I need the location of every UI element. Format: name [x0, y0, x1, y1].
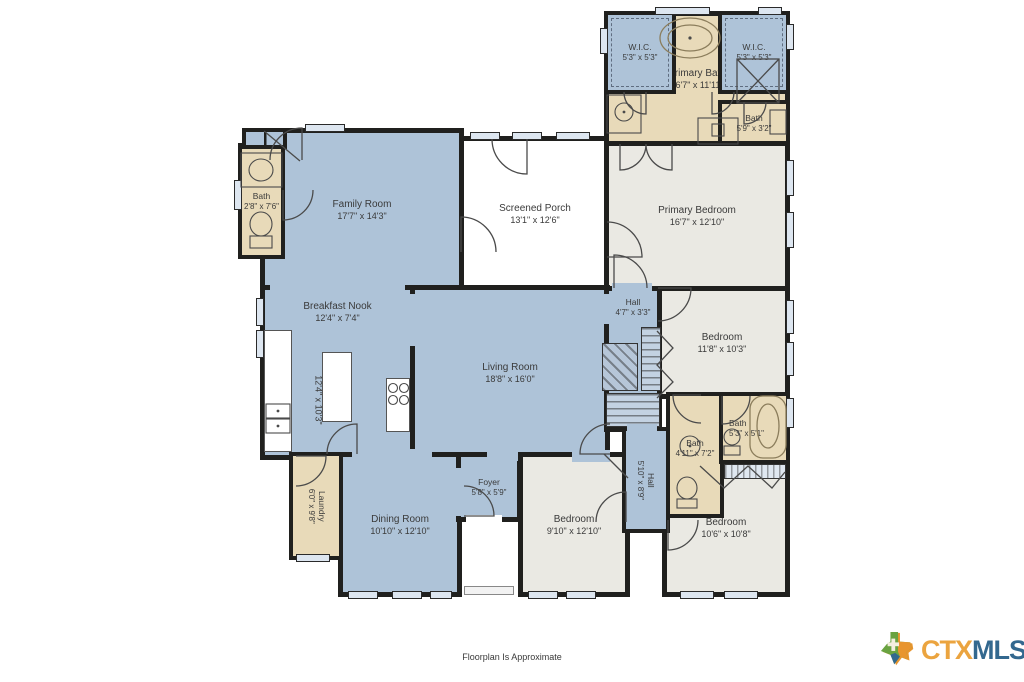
- opening-living-hallupper: [601, 294, 613, 324]
- window-marker: [786, 398, 794, 428]
- room-label: Breakfast Nook: [303, 300, 371, 313]
- room-dims: 18'8" x 16'0": [485, 374, 534, 385]
- room-label: Bedroom: [554, 513, 595, 526]
- kitchen-island: [322, 352, 352, 422]
- room-label: Hall: [626, 297, 641, 308]
- window-marker: [512, 132, 542, 140]
- texas-icon: [880, 630, 918, 670]
- window-marker: [680, 591, 714, 599]
- room-dims: 5'3" x 5'3": [737, 53, 772, 63]
- room-dims: 5'3" x 5'1": [729, 429, 764, 439]
- room-dims: 10'6" x 10'8": [701, 529, 750, 540]
- window-marker: [296, 554, 330, 562]
- room-dims: 16'7" x 11'11": [670, 80, 723, 91]
- room-laundry: Laundry 6'0" x 9'8": [289, 452, 343, 560]
- window-marker: [566, 591, 596, 599]
- logo-ctx-text: CTX: [921, 637, 972, 664]
- room-label: W.I.C.: [628, 42, 651, 53]
- room-living: Living Room 18'8" x 16'0": [410, 285, 610, 460]
- room-label: Primary Bedroom: [658, 204, 736, 217]
- window-marker: [724, 591, 758, 599]
- window-marker: [758, 7, 782, 15]
- opening-primary-hall: [612, 283, 652, 295]
- room-wic-right: W.I.C. 5'3" x 5'3": [718, 11, 790, 94]
- opening-living-foyer: [487, 449, 518, 461]
- room-dims: 9'10" x 12'10": [547, 526, 601, 537]
- room-label: Family Room: [333, 198, 392, 211]
- stove-icon: [386, 378, 410, 432]
- window-marker: [392, 591, 422, 599]
- logo-mls-text: MLS: [972, 637, 1024, 664]
- linen-closet: [641, 327, 661, 391]
- room-dims: 2'8" x 7'6": [244, 202, 279, 212]
- room-dims: 4'11" x 7'2": [676, 449, 715, 459]
- window-marker: [528, 591, 558, 599]
- opening-front-door: [466, 515, 502, 524]
- room-hall-lower: Hall 5'10" x 8'9": [622, 427, 670, 533]
- closet-top-left: [242, 128, 287, 149]
- ctxmls-logo: CTXMLS: [880, 630, 1024, 670]
- room-label: Bedroom: [702, 331, 743, 344]
- room-label: W.I.C.: [742, 42, 765, 53]
- room-dims: 13'1" x 12'6": [510, 215, 559, 226]
- window-marker: [430, 591, 452, 599]
- room-bath-3: Bath 4'11" x 7'2": [666, 392, 724, 518]
- window-marker: [234, 180, 242, 210]
- room-label: Dining Room: [371, 513, 429, 526]
- room-screened-porch: Screened Porch 13'1" x 12'6": [459, 136, 611, 291]
- floor-plan: Family Room 17'7" x 14'3" Screened Porch…: [0, 0, 1024, 682]
- room-label: Screened Porch: [499, 202, 571, 215]
- room-label: Bath: [253, 191, 271, 202]
- opening-family-breakfast: [270, 282, 405, 294]
- room-bedroom-2: Bedroom 11'8" x 10'3": [654, 286, 790, 399]
- opening-living-hall: [572, 450, 610, 462]
- room-dims: 11'8" x 10'3": [698, 344, 747, 355]
- opening-dining-foyer: [453, 468, 466, 516]
- room-dims: 5'3" x 5'3": [623, 53, 658, 63]
- room-primary-bedroom: Primary Bedroom 16'7" x 12'10": [604, 141, 790, 291]
- opening-stairs-hall: [627, 424, 657, 436]
- room-dims: 5'9" x 3'2": [737, 124, 772, 134]
- window-marker: [600, 28, 608, 54]
- room-dims: 12'4" x 7'4": [315, 313, 359, 324]
- room-family: Family Room 17'7" x 14'3": [260, 128, 464, 291]
- window-marker: [786, 212, 794, 248]
- room-dims: 5'8" x 5'9": [472, 488, 507, 498]
- opening-breakfast-living: [406, 294, 419, 346]
- room-label: Foyer: [478, 477, 500, 488]
- laundry-label: Laundry 6'0" x 9'8": [306, 489, 327, 524]
- window-marker: [256, 298, 264, 326]
- wardrobe-shelf: [724, 464, 786, 479]
- room-dims: 10'10" x 12'10": [370, 526, 429, 537]
- disclaimer-text: Floorplan Is Approximate: [0, 652, 1024, 662]
- window-marker: [305, 124, 345, 132]
- fireplace-icon: [602, 343, 638, 391]
- room-label: Bath: [686, 438, 704, 449]
- room-label: Living Room: [482, 361, 538, 374]
- room-bedroom-3: Bedroom 9'10" x 12'10": [518, 452, 630, 597]
- room-dims: 16'7" x 12'10": [670, 217, 724, 228]
- room-wic-left: W.I.C. 5'3" x 5'3": [604, 11, 676, 94]
- window-marker: [786, 24, 794, 50]
- room-label: Bath: [745, 113, 763, 124]
- window-marker: [348, 591, 378, 599]
- window-marker: [256, 330, 264, 358]
- window-marker: [470, 132, 500, 140]
- room-label: Bath: [729, 418, 747, 429]
- room-bath-1: Bath 2'8" x 7'6": [238, 143, 285, 259]
- entry-step: [464, 586, 514, 595]
- room-dining: Dining Room 10'10" x 12'10": [338, 452, 462, 597]
- kitchen-counter: [264, 330, 292, 452]
- hall-lower-label: Hall 5'10" x 8'9": [636, 460, 657, 499]
- room-bath-2: Bath 5'3" x 5'1": [719, 392, 790, 464]
- room-dims: 4'7" x 3'3": [616, 308, 651, 318]
- window-marker: [655, 7, 710, 15]
- stairs-icon: [606, 393, 660, 427]
- window-marker: [556, 132, 590, 140]
- window-marker: [786, 300, 794, 334]
- window-marker: [786, 342, 794, 376]
- opening-kitchen-dining: [352, 449, 432, 460]
- window-marker: [786, 160, 794, 196]
- room-bath-small: Bath 5'9" x 3'2": [718, 100, 790, 146]
- room-dims: 17'7" x 14'3": [337, 211, 386, 222]
